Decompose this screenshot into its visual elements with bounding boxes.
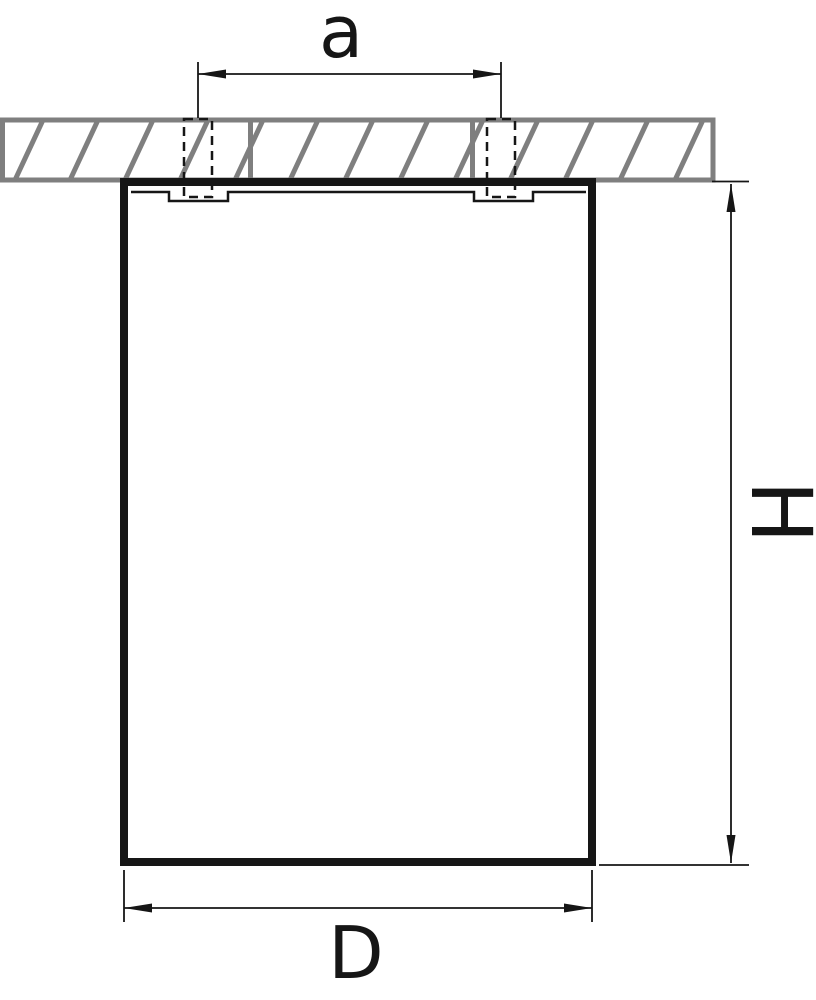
dimension-label-a: a xyxy=(319,0,363,74)
dimension-drawing: a H D xyxy=(0,0,816,1000)
fixture-outline xyxy=(124,182,592,862)
arrowhead-right-icon xyxy=(473,70,501,79)
arrowhead-right-icon xyxy=(564,904,592,913)
arrowhead-left-icon xyxy=(198,70,226,79)
ceiling-section xyxy=(3,120,759,180)
fixture-body xyxy=(124,182,592,862)
dimension-a: a xyxy=(198,0,501,118)
dimension-h: H xyxy=(599,182,816,866)
dimension-d: D xyxy=(124,870,592,995)
arrowhead-down-icon xyxy=(727,835,736,863)
technical-drawing-canvas: a H D xyxy=(0,0,816,1000)
arrowhead-left-icon xyxy=(124,904,152,913)
dimension-label-d: D xyxy=(328,911,383,995)
dimension-label-h: H xyxy=(732,480,816,543)
arrowhead-up-icon xyxy=(727,184,736,212)
